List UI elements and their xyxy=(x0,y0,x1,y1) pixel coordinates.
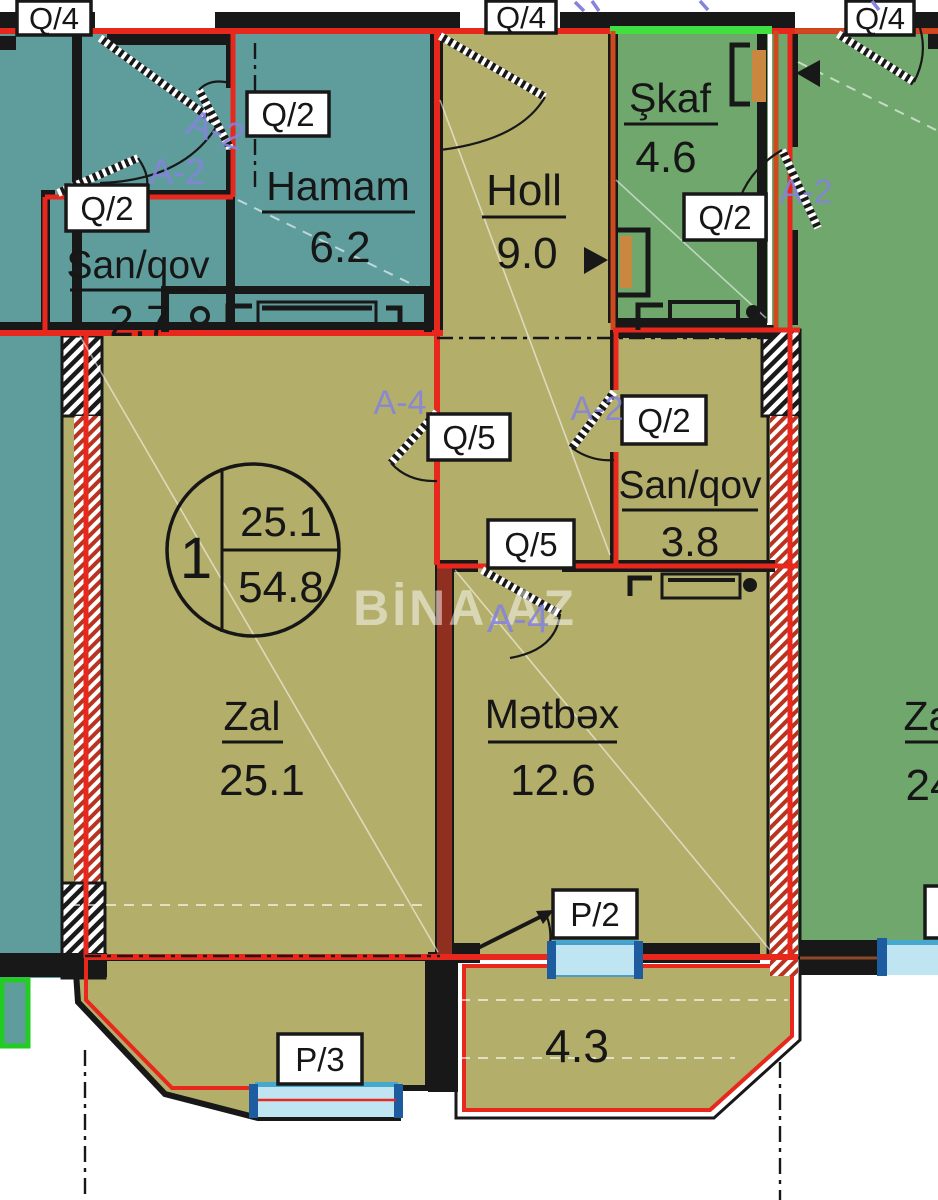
label-zal: Zal xyxy=(224,693,281,739)
wardrobe-door-bottom xyxy=(620,236,632,288)
area-zal: 25.1 xyxy=(219,756,305,805)
party-wall-right xyxy=(770,416,798,976)
door-label-q4-left: Q/4 xyxy=(29,1,79,36)
pillar-right-top xyxy=(762,330,800,416)
label-san-qov-right: San/qov xyxy=(618,464,762,507)
door-label-q4-middle: Q/4 xyxy=(496,0,546,35)
area-san-qov-left: 2.7 xyxy=(109,297,170,346)
door-label-q2-skaf: Q/2 xyxy=(698,199,751,236)
clipped-top-marks xyxy=(575,1,879,11)
mark-a4-metbex: A-4 xyxy=(487,597,549,641)
unit-living-area: 25.1 xyxy=(240,498,322,545)
label-holl: Holl xyxy=(486,166,562,215)
pillar-left-top xyxy=(62,336,102,416)
window-neighbor-right xyxy=(877,938,938,976)
door-label-q2-hamam: Q/2 xyxy=(261,96,314,133)
mark-a2-san-qov: A-2 xyxy=(149,151,205,192)
door-label-q5-zal: Q/5 xyxy=(442,419,495,456)
mark-a2-right: A-2 xyxy=(780,173,833,211)
neighbor-left-balcony xyxy=(2,980,28,1046)
label-hamam: Hamam xyxy=(266,163,410,209)
door-label-q4-right: Q/4 xyxy=(855,1,905,36)
label-skaf: Şkaf xyxy=(629,75,712,121)
area-metbex: 12.6 xyxy=(510,756,596,805)
door-label-q2-san-qov-right: Q/2 xyxy=(637,402,690,439)
area-balcony: 4.3 xyxy=(545,1020,609,1072)
area-neighbor-zal: 24 xyxy=(906,761,938,810)
door-label-q2-san-qov-left: Q/2 xyxy=(80,190,133,227)
door-label-p2: P/2 xyxy=(570,896,620,933)
window-p2 xyxy=(547,940,643,979)
door-label-clipped-right xyxy=(925,886,938,938)
room-neighbor-left-strip xyxy=(0,328,62,978)
window-p3 xyxy=(249,1082,403,1118)
mark-a4-holl: A-4 xyxy=(374,384,427,422)
wardrobe-door-top xyxy=(752,50,766,102)
unit-total-area: 54.8 xyxy=(238,563,324,612)
area-hamam: 6.2 xyxy=(309,223,370,272)
area-san-qov-right: 3.8 xyxy=(661,518,719,565)
floor-plan: 1 25.1 54.8 BİNA.AZ Hamam 6.2 San/qov 2.… xyxy=(0,0,938,1200)
unit-number: 1 xyxy=(180,526,212,591)
label-san-qov-left: San/qov xyxy=(66,244,210,287)
area-holl: 9.0 xyxy=(496,229,557,278)
label-neighbor-zal: Zal xyxy=(904,693,938,739)
area-skaf: 4.6 xyxy=(635,133,696,182)
door-label-p3: P/3 xyxy=(295,1041,345,1078)
label-metbex: Mətbəx xyxy=(485,691,620,737)
floor-plan-drawing: 1 25.1 54.8 BİNA.AZ Hamam 6.2 San/qov 2.… xyxy=(0,0,938,1200)
boundary-green-segment xyxy=(610,26,772,34)
mark-a2-middle: A-2 xyxy=(571,390,624,428)
door-label-q5-metbex: Q/5 xyxy=(504,526,557,563)
